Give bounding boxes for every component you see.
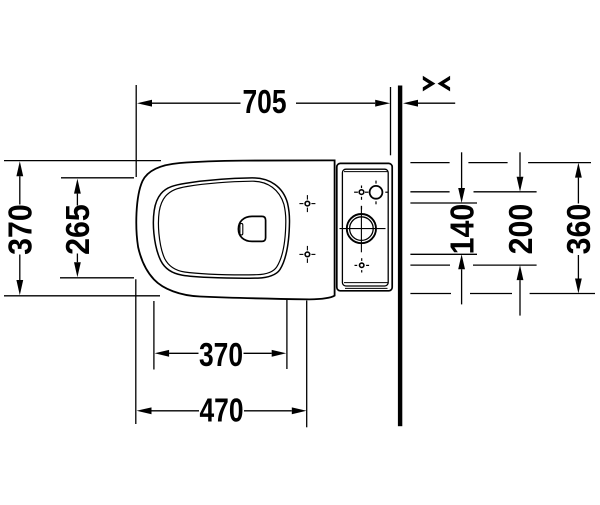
svg-text:705: 705	[242, 84, 286, 120]
svg-text:265: 265	[59, 204, 96, 255]
svg-text:370: 370	[199, 337, 243, 373]
svg-text:360: 360	[560, 204, 597, 255]
svg-text:370: 370	[1, 204, 38, 255]
svg-text:470: 470	[199, 393, 243, 429]
svg-text:200: 200	[502, 204, 539, 255]
svg-text:140: 140	[443, 204, 480, 255]
